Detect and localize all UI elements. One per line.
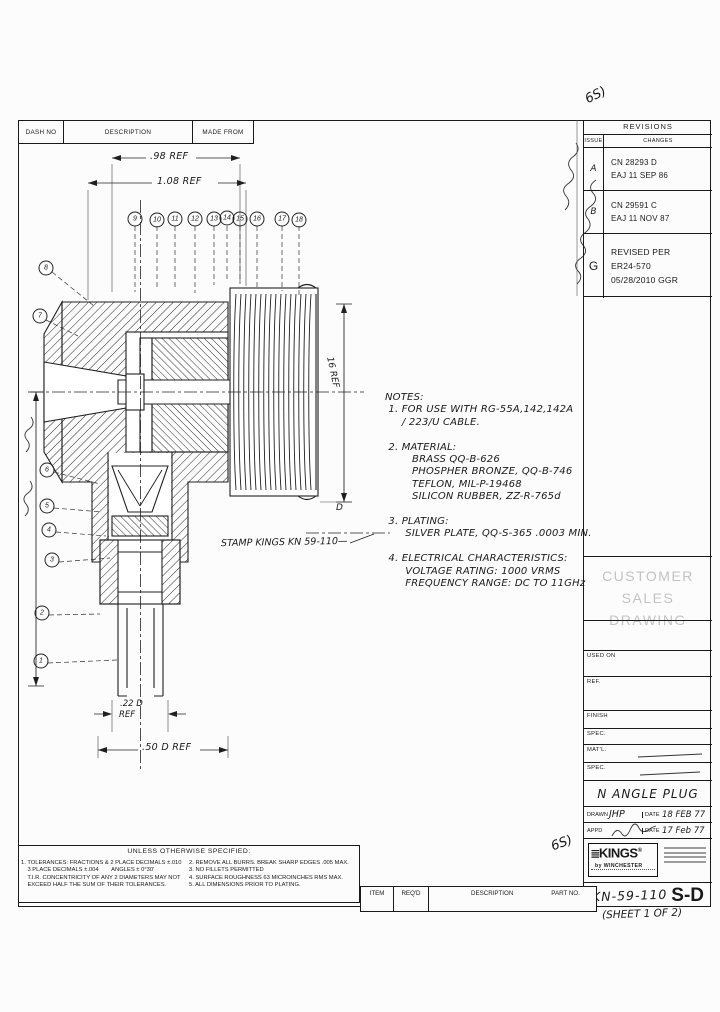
dimension-50d-ref: .50 D REF <box>142 742 191 753</box>
registered-mark: ® <box>638 848 642 854</box>
part-number-box: KN-59-110 S-D <box>584 882 712 908</box>
revisions-table: REVISIONS ISSUE CHANGES A CN 28293 D EAJ… <box>584 120 712 296</box>
drawn-date: 18 FEB 77 <box>662 810 712 820</box>
balloon-callout-5: 5 <box>40 499 55 514</box>
revision-change-line: EAJ 11 NOV 87 <box>611 212 712 225</box>
revisions-title: REVISIONS <box>584 120 712 135</box>
note-line: PHOSPHER BRONZE, QQ-B-746 <box>385 466 615 478</box>
revision-change-line: REVISED PER <box>611 245 712 259</box>
note-line <box>385 504 615 516</box>
revision-row-b: B CN 29591 C EAJ 11 NOV 87 <box>584 191 712 234</box>
balloon-callout-2: 2 <box>35 606 50 621</box>
parts-list-strip: ITEM REQ'D DESCRIPTION PART NO. <box>360 886 597 912</box>
dimension-22d-ref: REF <box>119 710 135 720</box>
description-column-header: DESCRIPTION <box>471 890 513 897</box>
revision-issue: G <box>584 234 604 298</box>
note-line: FREQUENCY RANGE: DC TO 11GHz <box>385 578 615 590</box>
unless-otherwise-specified-box: UNLESS OTHERWISE SPECIFIED: 1. TOLERANCE… <box>18 845 360 903</box>
dimension-22d: .22 D <box>120 699 143 709</box>
logo-address-lines <box>664 847 706 865</box>
item-header: ITEM <box>361 887 394 911</box>
uos-line: T.I.R. CONCENTRICITY OF ANY 2 DIAMETERS … <box>21 875 189 882</box>
field-matl: MAT'L. <box>584 744 712 762</box>
logo-name: KINGS <box>599 845 638 860</box>
balloon-callout-9: 9 <box>128 212 143 227</box>
note-line <box>385 429 615 441</box>
balloon-callout-8: 8 <box>39 261 54 276</box>
note-line: 3. PLATING: <box>385 516 615 528</box>
revision-change-line: 05/28/2010 GGR <box>611 273 712 287</box>
part-number: KN-59-110 <box>592 887 668 905</box>
uos-line: 4. SURFACE ROUGHNESS 63 MICROINCHES RMS … <box>189 875 357 882</box>
balloon-callout-12: 12 <box>188 212 203 227</box>
drawn-label: DRAWN <box>584 812 609 818</box>
part-no-header: PART NO. <box>551 890 580 897</box>
note-line: 1. FOR USE WITH RG-55A,142,142A <box>385 404 615 416</box>
uos-line: EXCEED HALF THE SUM OF THEIR TOLERANCES. <box>21 882 189 889</box>
stamp-note: STAMP KINGS KN 59-110— <box>221 536 348 549</box>
field-ref: REF. <box>584 676 712 710</box>
balloon-callout-6: 6 <box>40 463 55 478</box>
uos-line: 1. TOLERANCES: FRACTIONS & 2 PLACE DECIM… <box>21 860 189 867</box>
drawn-value: JHP <box>609 809 642 820</box>
note-line <box>385 541 615 553</box>
balloon-callout-1: 1 <box>34 654 49 669</box>
made-from-header: MADE FROM <box>193 121 253 143</box>
revision-row-a: A CN 28293 D EAJ 11 SEP 86 <box>584 148 712 191</box>
reqd-header: REQ'D <box>394 887 429 911</box>
balloon-callout-7: 7 <box>33 309 48 324</box>
balloon-callout-11: 11 <box>168 212 183 227</box>
uos-line: 3 PLACE DECIMALS ±.004 ANGLES ± 0°30' <box>21 867 189 874</box>
uos-right-column: 2. REMOVE ALL BURRS. BREAK SHARP EDGES .… <box>189 860 357 889</box>
dash-number-table: DASH NO DESCRIPTION MADE FROM <box>18 120 254 144</box>
part-number-suffix: S-D <box>671 885 704 907</box>
empty-panel <box>584 296 712 556</box>
watermark-line1: CUSTOMER <box>584 565 712 587</box>
note-line: VOLTAGE RATING: 1000 VRMS <box>385 566 615 578</box>
approved-row: APPD DATE 17 Feb 77 <box>584 822 712 838</box>
revision-change-line: CN 29591 C <box>611 199 712 212</box>
uos-line: 5. ALL DIMENSIONS PRIOR TO PLATING. <box>189 882 357 889</box>
balloon-callout-16: 16 <box>250 212 265 227</box>
appd-label: APPD <box>584 828 609 834</box>
appd-date: 17 Feb 77 <box>662 826 712 836</box>
note-line: 2. MATERIAL: <box>385 442 615 454</box>
empty-strip <box>584 620 712 650</box>
note-line: 4. ELECTRICAL CHARACTERISTICS: <box>385 553 615 565</box>
note-line: SILVER PLATE, QQ-S-365 .0003 MIN. <box>385 528 615 540</box>
uos-line: 2. REMOVE ALL BURRS. BREAK SHARP EDGES .… <box>189 860 357 867</box>
dimension-108-ref: 1.08 REF <box>157 176 202 187</box>
balloon-callout-4: 4 <box>42 523 57 538</box>
logo-subtitle: by WINCHESTER <box>591 863 655 870</box>
balloon-callout-18: 18 <box>292 213 307 228</box>
revisions-issue-header: ISSUE <box>584 135 604 147</box>
field-spec-2: SPEC. <box>584 762 712 780</box>
note-line: BRASS QQ-B-626 <box>385 454 615 466</box>
note-line: SILICON RUBBER, ZZ-R-765d <box>385 491 615 503</box>
note-line: NOTES: <box>385 392 615 404</box>
drawn-row: DRAWN JHP DATE 18 FEB 77 <box>584 806 712 822</box>
date-label: DATE <box>642 812 662 818</box>
field-finish: FINISH <box>584 710 712 728</box>
drawing-sheet: 910111213141516171887654321 DASH NO DESC… <box>0 0 720 1012</box>
note-line: TEFLON, MIL-P-19468 <box>385 479 615 491</box>
uos-left-column: 1. TOLERANCES: FRACTIONS & 2 PLACE DECIM… <box>21 860 189 889</box>
kings-logo-text: ≣KINGS® <box>591 845 655 861</box>
kings-flag-icon: ≣ <box>590 848 599 861</box>
balloon-callout-10: 10 <box>150 213 165 228</box>
description-header: DESCRIPTION <box>64 121 193 143</box>
revision-issue: B <box>584 191 604 233</box>
revision-change-line: ER24-570 <box>611 259 712 273</box>
revision-change-line: EAJ 11 SEP 86 <box>611 169 712 182</box>
uos-line: 3. NO FILLETS PERMITTED <box>189 867 357 874</box>
dimension-98-ref: .98 REF <box>150 151 188 162</box>
revision-change-line: CN 28293 D <box>611 156 712 169</box>
revisions-changes-header: CHANGES <box>604 135 712 147</box>
datum-d-mark: D <box>336 503 343 513</box>
notes-block: NOTES: 1. FOR USE WITH RG-55A,142,142A /… <box>385 392 615 590</box>
balloon-callout-15: 15 <box>233 212 248 227</box>
drawing-title: N ANGLE PLUG <box>584 780 712 806</box>
kings-logo: ≣KINGS® by WINCHESTER <box>588 843 658 877</box>
title-block-column: REVISIONS ISSUE CHANGES A CN 28293 D EAJ… <box>583 120 712 908</box>
uos-title: UNLESS OTHERWISE SPECIFIED: <box>19 846 359 859</box>
revision-issue: A <box>584 148 604 190</box>
field-used-on: USED ON <box>584 650 712 676</box>
customer-sales-watermark: CUSTOMER SALES DRAWING <box>584 556 712 620</box>
note-line: / 223/U CABLE. <box>385 417 615 429</box>
revision-row-g: G REVISED PER ER24-570 05/28/2010 GGR <box>584 234 712 298</box>
logo-panel: ≣KINGS® by WINCHESTER <box>584 838 712 882</box>
date-label: DATE <box>642 828 662 834</box>
balloon-callout-17: 17 <box>275 212 290 227</box>
field-spec-1: SPEC. <box>584 728 712 744</box>
dash-no-header: DASH NO <box>19 121 64 143</box>
balloon-callout-3: 3 <box>45 553 60 568</box>
